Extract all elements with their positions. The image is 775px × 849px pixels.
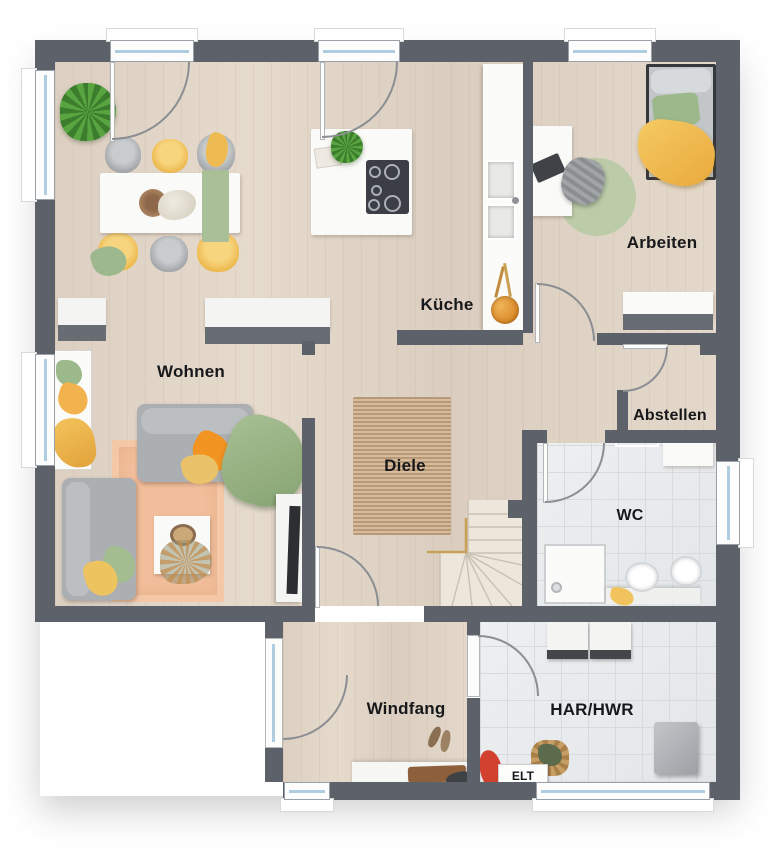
stair-handrail xyxy=(427,518,466,552)
window-sill xyxy=(532,798,714,812)
wall-wc-top-left xyxy=(537,430,547,443)
wall-kitchen-diele xyxy=(397,330,523,345)
wall-abstellen-left xyxy=(617,390,628,432)
washer-front xyxy=(547,650,588,659)
cooktop-burner xyxy=(369,166,381,178)
wall-wohnen-bottom xyxy=(35,606,315,622)
room-label-arbeiten: Arbeiten xyxy=(627,233,698,253)
dryer-front xyxy=(590,650,631,659)
windfang-window xyxy=(284,782,330,800)
wc-sink xyxy=(625,562,659,592)
wall-stairs-wc xyxy=(522,430,537,606)
wall-outer-right xyxy=(716,62,740,800)
har-window xyxy=(536,782,710,800)
kitchen-sink xyxy=(486,204,516,240)
wall-sideboard-small xyxy=(58,298,106,327)
shower-drain xyxy=(551,582,562,593)
table-runner xyxy=(202,170,229,242)
wall-stairs-stub xyxy=(508,500,522,518)
wall-wc-top-right xyxy=(605,430,716,443)
dining-chair xyxy=(150,236,188,272)
shower xyxy=(544,544,606,604)
room-label-diele: Diele xyxy=(384,456,426,476)
wall-sideboard-small-front xyxy=(58,325,106,341)
dining-chair xyxy=(152,139,188,173)
faucet-icon xyxy=(512,197,519,204)
wall-wohnen-diele xyxy=(302,418,315,606)
fruit-bowl xyxy=(491,296,519,324)
room-label-elt: ELT xyxy=(512,769,534,783)
cooktop-burner xyxy=(384,164,400,180)
room-label-wohnen: Wohnen xyxy=(157,362,225,382)
wall-windfang-har-bottom xyxy=(467,698,480,782)
laundry-clothes xyxy=(538,744,562,766)
toilet xyxy=(670,556,702,586)
bed-pillow xyxy=(651,68,712,94)
dining-window xyxy=(35,70,55,200)
cooktop-burner xyxy=(371,185,382,196)
cooktop-burner xyxy=(384,195,401,212)
arbeiten-sideboard-front xyxy=(623,314,713,330)
arbeiten-window xyxy=(568,40,652,62)
window-sill xyxy=(280,798,334,812)
utility-box xyxy=(654,722,698,774)
wc-window xyxy=(716,461,740,545)
room-label-abstellen: Abstellen xyxy=(633,407,707,425)
kitchen-sink xyxy=(486,160,516,200)
window-sill xyxy=(738,458,754,548)
room-label-har-hwr: HAR/HWR xyxy=(550,700,634,720)
dining-chair xyxy=(105,137,141,173)
entry-door-glass xyxy=(272,644,275,742)
divider-sideboard xyxy=(205,298,330,329)
wall-abstellen-stub xyxy=(700,345,716,355)
wohnen-window xyxy=(35,354,55,466)
room-label-windfang: Windfang xyxy=(367,699,446,719)
wall-kitchen-arbeiten xyxy=(523,62,533,333)
wall-wohnen-diele-stub xyxy=(302,341,315,355)
terrace-door-window xyxy=(110,40,194,62)
room-label-wc: WC xyxy=(616,507,643,525)
floor-plan: Küche Arbeiten Abstellen WC Wohnen Diele… xyxy=(0,0,775,849)
cooktop-burner xyxy=(368,199,380,211)
room-label-kueche: Küche xyxy=(421,295,474,315)
terrace-door-window xyxy=(318,40,400,62)
wall-diele-bottom xyxy=(424,606,716,622)
